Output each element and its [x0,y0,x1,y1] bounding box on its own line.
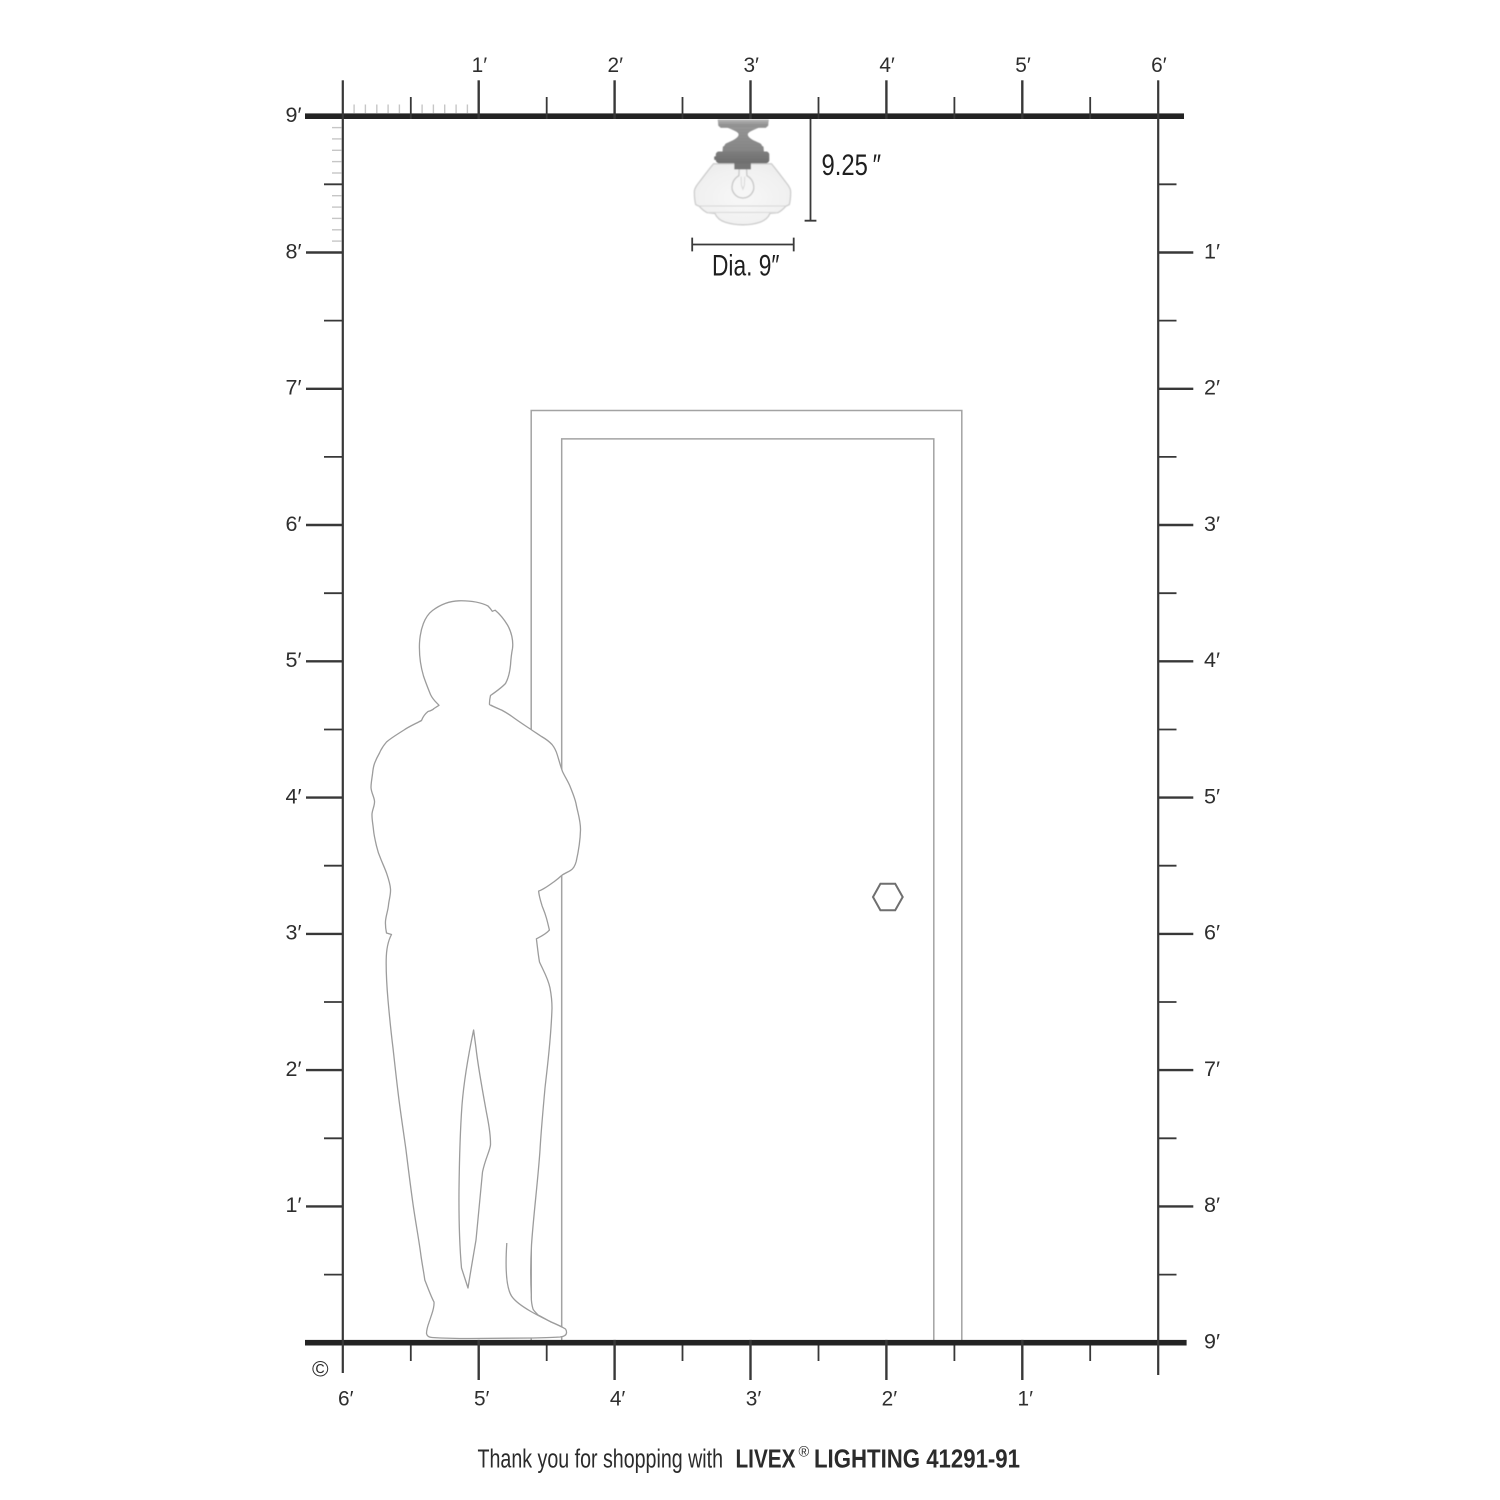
svg-text:3′: 3′ [1204,512,1220,536]
svg-text:3′: 3′ [746,1387,762,1411]
svg-text:2′: 2′ [286,1057,302,1081]
svg-text:9.25 ″: 9.25 ″ [822,149,882,182]
svg-text:6′: 6′ [1151,53,1167,77]
svg-text:4′: 4′ [1204,648,1220,672]
svg-text:2′: 2′ [608,53,624,77]
svg-text:1′: 1′ [286,1193,302,1217]
svg-text:8′: 8′ [1204,1193,1220,1217]
svg-text:1′: 1′ [1204,239,1220,263]
svg-text:6′: 6′ [286,512,302,536]
svg-text:9′: 9′ [286,103,302,127]
svg-text:3′: 3′ [743,53,759,77]
svg-text:5′: 5′ [474,1387,490,1411]
svg-text:2′: 2′ [1204,376,1220,400]
svg-text:Dia. 9″: Dia. 9″ [712,250,780,283]
svg-text:5′: 5′ [286,648,302,672]
svg-text:©: © [312,1357,329,1382]
svg-text:8′: 8′ [286,239,302,263]
svg-text:4′: 4′ [286,784,302,808]
svg-text:5′: 5′ [1204,784,1220,808]
svg-text:Thank you for shopping with LI: Thank you for shopping with LIVEX®LIGHTI… [478,1445,1021,1474]
svg-text:6′: 6′ [1204,921,1220,945]
svg-text:1′: 1′ [1018,1387,1034,1411]
svg-text:6′: 6′ [338,1387,354,1411]
svg-text:1′: 1′ [472,53,488,77]
svg-text:5′: 5′ [1015,53,1031,77]
svg-text:7′: 7′ [286,376,302,400]
svg-text:4′: 4′ [879,53,895,77]
svg-text:7′: 7′ [1204,1057,1220,1081]
svg-text:3′: 3′ [286,921,302,945]
svg-text:2′: 2′ [882,1387,898,1411]
svg-text:9′: 9′ [1204,1330,1220,1354]
svg-text:4′: 4′ [610,1387,626,1411]
